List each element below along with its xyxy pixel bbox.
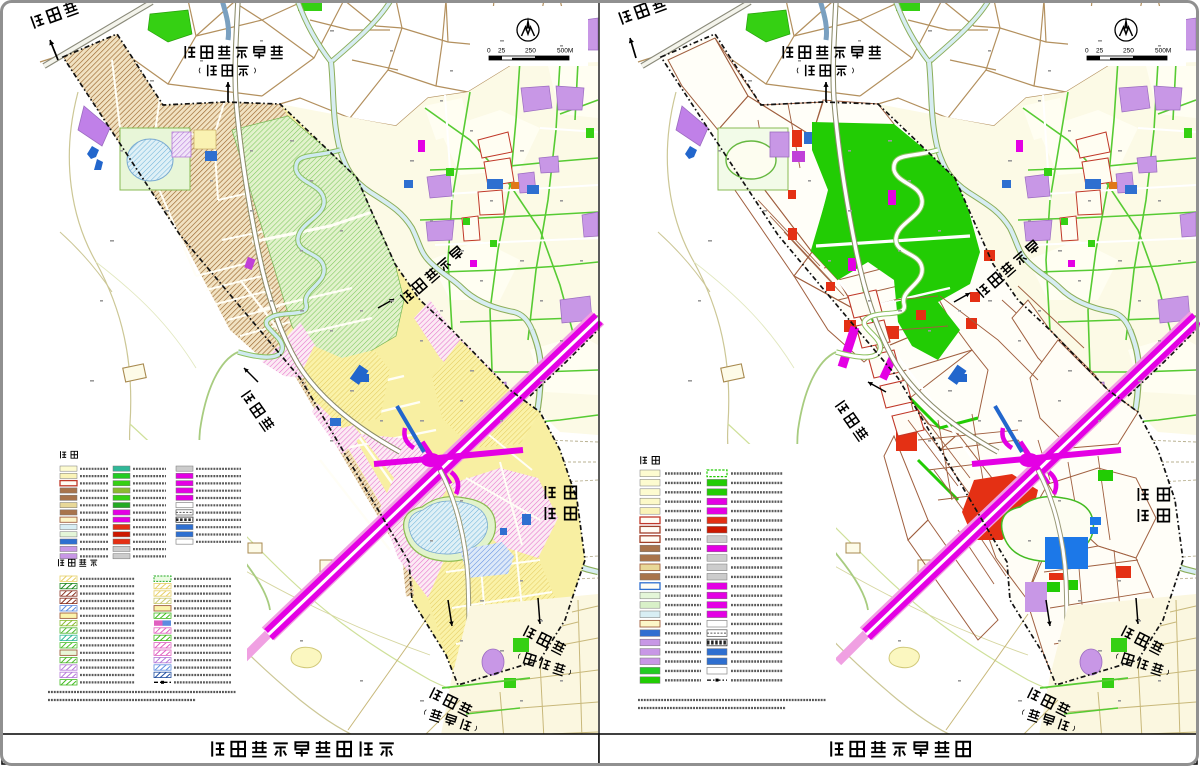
svg-text:250: 250	[1123, 48, 1134, 55]
svg-text:25: 25	[1096, 48, 1104, 55]
svg-text:500M: 500M	[1155, 48, 1171, 55]
svg-text:0: 0	[1085, 48, 1089, 55]
svg-text:0: 0	[487, 48, 491, 55]
svg-text:500M: 500M	[557, 48, 573, 55]
svg-text:25: 25	[498, 48, 506, 55]
svg-text:250: 250	[525, 48, 536, 55]
